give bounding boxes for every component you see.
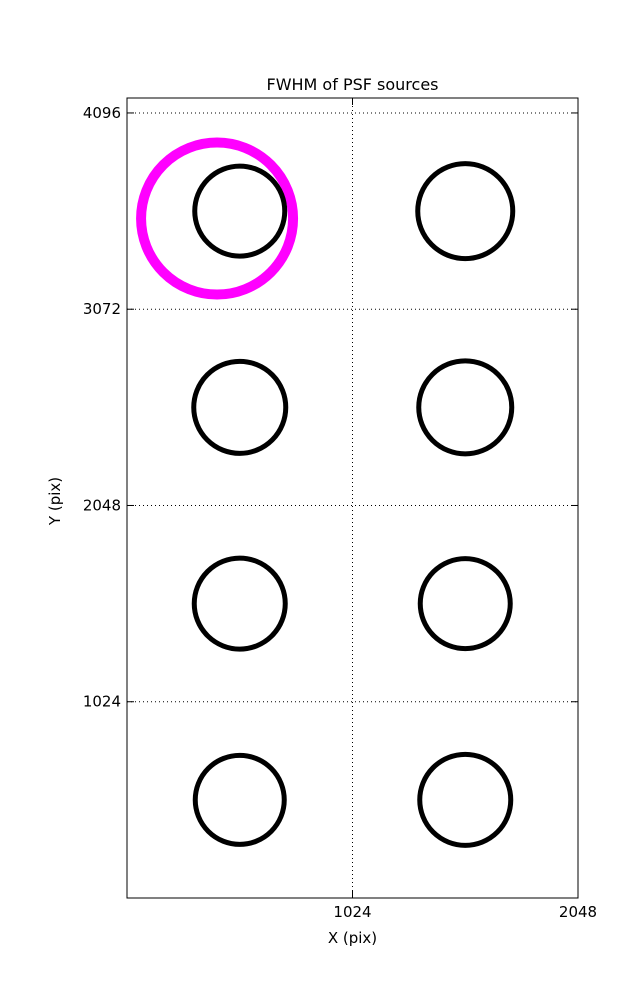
psf-source-marker-2 [194, 361, 286, 453]
psf-source-marker-3 [419, 361, 512, 454]
psf-source-marker-5 [420, 559, 510, 649]
fwhm-psf-plot: 102420483072409610242048 FWHM of PSF sou… [0, 0, 637, 1000]
y-axis-label: Y (pix) [46, 477, 64, 526]
highlighted-source-ring [141, 143, 293, 295]
ytick-label-4096: 4096 [83, 104, 121, 122]
psf-source-marker-7 [420, 754, 511, 845]
ytick-label-1024: 1024 [83, 693, 121, 711]
marker-layer [141, 143, 513, 846]
ytick-label-2048: 2048 [83, 496, 121, 514]
figure-canvas: 102420483072409610242048 FWHM of PSF sou… [0, 0, 637, 1000]
xtick-label-1024: 1024 [333, 903, 371, 921]
psf-source-marker-6 [195, 755, 284, 844]
plot-title: FWHM of PSF sources [266, 75, 438, 94]
xtick-label-2048: 2048 [559, 903, 597, 921]
psf-source-marker-4 [194, 558, 285, 649]
psf-source-marker-1 [418, 164, 513, 259]
psf-source-marker-0 [195, 166, 285, 256]
tick-label-layer: 102420483072409610242048 [83, 104, 597, 921]
x-axis-label: X (pix) [328, 929, 377, 947]
ytick-label-3072: 3072 [83, 300, 121, 318]
